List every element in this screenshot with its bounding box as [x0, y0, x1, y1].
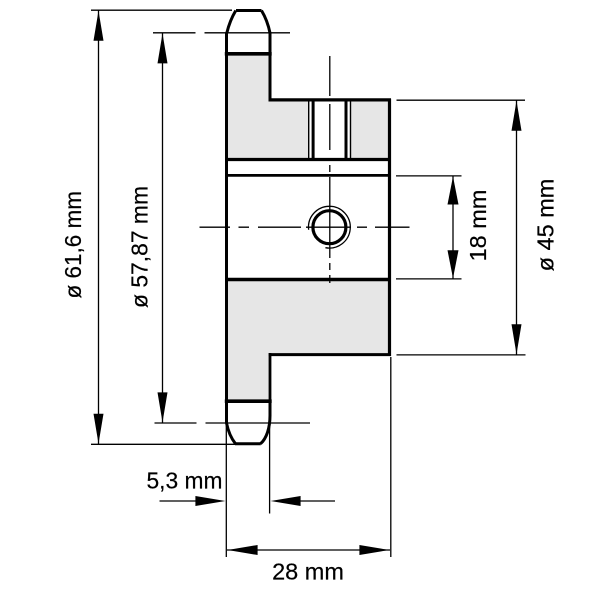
svg-text:ø 45 mm: ø 45 mm [533, 179, 559, 272]
svg-text:18 mm: 18 mm [465, 190, 491, 262]
svg-text:ø 57,87 mm: ø 57,87 mm [127, 186, 153, 308]
svg-text:ø 61,6 mm: ø 61,6 mm [60, 191, 86, 298]
svg-text:28 mm: 28 mm [272, 559, 344, 585]
svg-text:5,3 mm: 5,3 mm [147, 467, 223, 493]
